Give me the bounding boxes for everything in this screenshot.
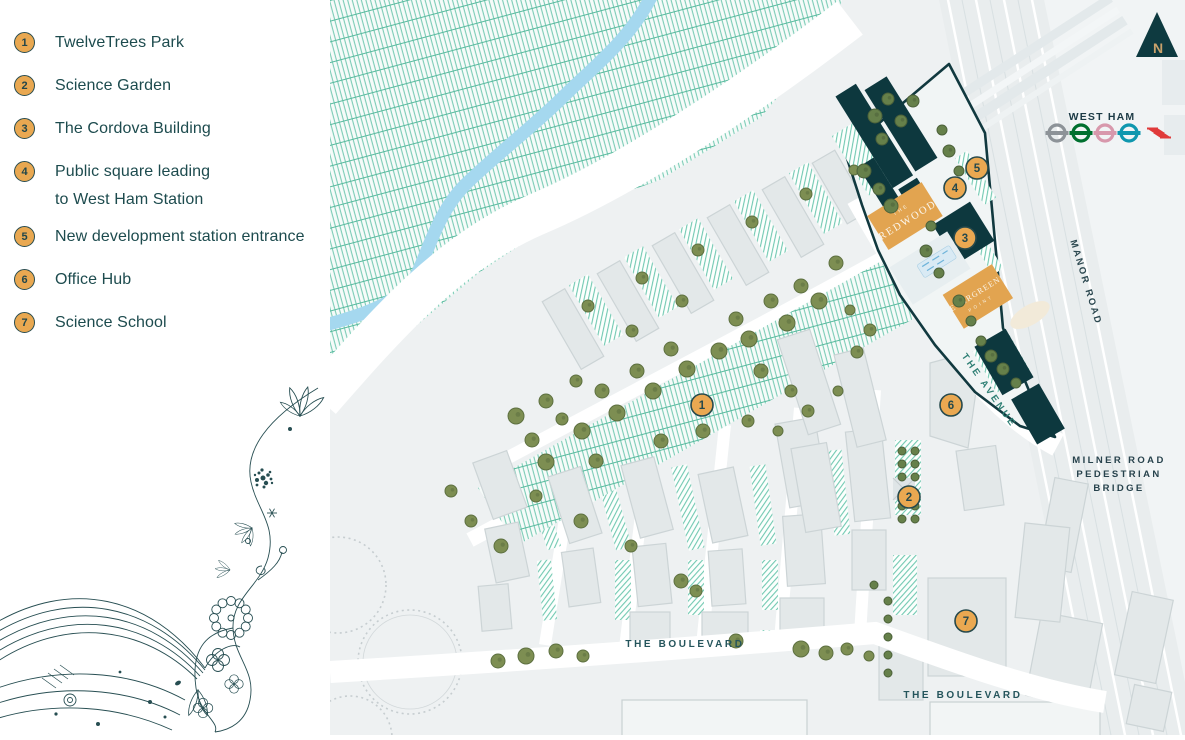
svg-text:7: 7: [963, 616, 969, 628]
svg-text:6: 6: [948, 400, 954, 412]
masterplan-page: THE REDWOOD EVERGREEN POINT THE BOULEVAR…: [0, 0, 1185, 735]
map-marker-7[interactable]: 7: [955, 610, 977, 632]
svg-text:BRIDGE: BRIDGE: [1093, 483, 1144, 494]
legend-number-badge: 6: [14, 269, 35, 290]
map-marker-5[interactable]: 5: [966, 157, 988, 179]
svg-text:4: 4: [952, 183, 959, 195]
svg-text:1: 1: [699, 400, 706, 412]
legend-label: The Cordova Building: [55, 118, 211, 140]
legend-label: New development station entrance: [55, 226, 305, 248]
legend-number-badge: 2: [14, 75, 35, 96]
svg-text:MILNER ROAD: MILNER ROAD: [1072, 455, 1165, 466]
legend-panel: 1 TwelveTrees Park 2 Science Garden 3 Th…: [0, 0, 330, 735]
legend-label: Public square leading: [55, 161, 210, 183]
legend-item-1: 1 TwelveTrees Park: [14, 32, 330, 60]
map-marker-4[interactable]: 4: [944, 177, 966, 199]
legend-label: Science Garden: [55, 75, 171, 97]
legend-item-2: 2 Science Garden: [14, 75, 330, 103]
legend-label: TwelveTrees Park: [55, 32, 184, 54]
svg-text:2: 2: [906, 492, 912, 504]
legend-item-5: 5 New development station entrance: [14, 226, 330, 254]
north-letter: N: [1153, 40, 1163, 56]
floral-dots: [54, 427, 292, 726]
legend-number-badge: 7: [14, 312, 35, 333]
legend-label: Office Hub: [55, 269, 131, 291]
map-marker-2[interactable]: 2: [898, 486, 920, 508]
west-ham-label: WEST HAM: [1069, 111, 1136, 123]
legend-item-6: 6 Office Hub: [14, 269, 330, 297]
svg-text:5: 5: [974, 163, 981, 175]
floral-decoration-illustration: [0, 370, 330, 735]
map-marker-3[interactable]: 3: [954, 227, 976, 249]
legend-number-badge: 1: [14, 32, 35, 53]
legend-item-7: 7 Science School: [14, 312, 330, 340]
legend-number-badge: 5: [14, 226, 35, 247]
svg-text:3: 3: [962, 233, 968, 245]
boulevard-label-2: THE BOULEVARD: [903, 690, 1022, 701]
map-legend: 1 TwelveTrees Park 2 Science Garden 3 Th…: [0, 0, 330, 340]
legend-label: Science School: [55, 312, 167, 334]
map-marker-6[interactable]: 6: [940, 394, 962, 416]
map-marker-1[interactable]: 1: [691, 394, 713, 416]
legend-item-3: 3 The Cordova Building: [14, 118, 330, 146]
boulevard-label-1: THE BOULEVARD: [625, 639, 744, 650]
legend-number-badge: 4: [14, 161, 35, 182]
legend-label-line2: to West Ham Station: [55, 189, 210, 211]
svg-text:PEDESTRIAN: PEDESTRIAN: [1076, 469, 1161, 480]
site-map: THE REDWOOD EVERGREEN POINT THE BOULEVAR…: [330, 0, 1185, 735]
legend-item-4: 4 Public square leadingto West Ham Stati…: [14, 161, 330, 211]
site-map-canvas: THE REDWOOD EVERGREEN POINT THE BOULEVAR…: [330, 0, 1185, 735]
legend-number-badge: 3: [14, 118, 35, 139]
